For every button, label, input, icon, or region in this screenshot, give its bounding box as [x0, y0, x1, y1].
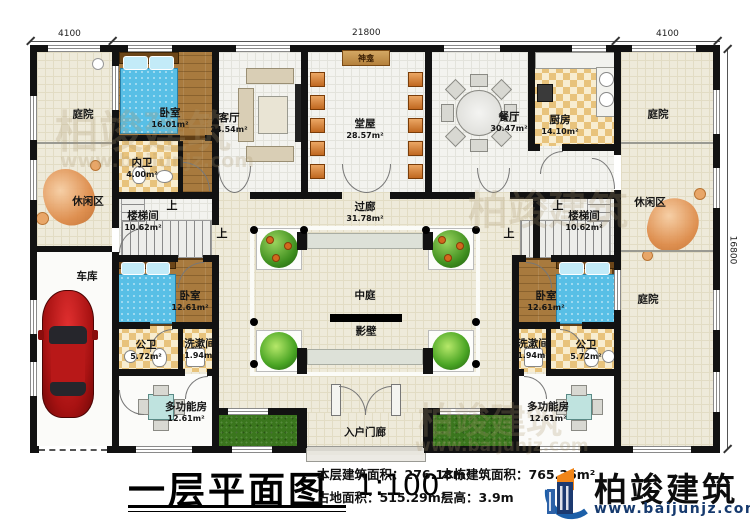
window — [128, 45, 172, 52]
wall — [308, 192, 342, 199]
window — [713, 290, 720, 330]
wall — [203, 255, 219, 262]
wall — [551, 255, 621, 262]
wall — [112, 322, 150, 329]
room-label-courtyard-bottom-right: 庭院 — [638, 294, 659, 307]
room-label-kitchen: 厨房14.10m² — [541, 114, 578, 136]
stair-up-label: 上 — [553, 197, 564, 213]
room-label-multi-room-right: 多功能房12.61m² — [527, 401, 569, 423]
stair-up-label: 上 — [217, 225, 228, 241]
room-label-leisure-right: 休闲区 — [634, 197, 666, 210]
column-dot — [472, 226, 480, 234]
room-label-atrium: 中庭 — [355, 290, 376, 303]
shrine-label: 神龛 — [358, 53, 374, 64]
fruit-tree-icon — [432, 230, 470, 268]
column-dot — [250, 318, 258, 326]
room-label-stairwell-right: 楼梯间10.62m² — [565, 210, 602, 232]
stair-up-label: 上 — [504, 225, 515, 241]
wall — [205, 135, 219, 141]
wall — [212, 195, 219, 225]
floor-plan-canvas: 神龛 柏竣建筑 www.baijunjz.com 柏竣建筑 柏竣建筑 www.b… — [0, 0, 750, 531]
stove-icon — [537, 84, 553, 102]
stair-up-label: 上 — [167, 197, 178, 213]
stone-dot — [694, 188, 706, 200]
column-dot — [300, 226, 308, 234]
table-icon — [566, 394, 592, 420]
wall — [562, 144, 621, 151]
lamp-icon — [92, 58, 104, 70]
wall — [112, 252, 119, 453]
wall — [432, 192, 475, 199]
wall — [546, 369, 621, 376]
window — [540, 446, 580, 453]
room-label-stairwell-left: 楼梯间10.62m² — [124, 210, 161, 232]
pier — [423, 348, 433, 374]
window — [713, 90, 720, 134]
divider-line — [621, 250, 713, 252]
room-label-main-hall: 堂屋28.57m² — [346, 118, 383, 140]
brand-website: www.baijunjz.com — [594, 501, 750, 517]
wall — [172, 322, 219, 329]
title-underline — [128, 505, 346, 508]
sink-icon — [599, 72, 614, 87]
wall — [112, 135, 180, 141]
room-label-entry-porch: 入户门廊 — [344, 427, 386, 440]
window — [228, 408, 268, 415]
room-label-screen-wall: 影壁 — [356, 326, 377, 339]
window — [713, 168, 720, 208]
basin-icon — [156, 170, 173, 183]
window — [444, 45, 500, 52]
column-dot — [250, 360, 258, 368]
column-dot — [422, 226, 430, 234]
stat-site-area: 占地面积：515.29m² — [317, 487, 446, 506]
stone-dot — [36, 212, 49, 225]
wall — [528, 45, 535, 151]
sink-icon — [599, 92, 614, 107]
wall — [390, 192, 425, 199]
room-label-garage: 车库 — [77, 271, 98, 284]
pier — [297, 408, 307, 448]
dimension-line-top — [30, 41, 720, 42]
wall — [301, 45, 308, 199]
room-label-wash-room-right: 洗漱间1.94m² — [517, 338, 549, 360]
grass-left — [219, 415, 298, 446]
shrine-cabinet: 神龛 — [342, 50, 390, 66]
dimension-top-left: 4100 — [58, 29, 81, 39]
bed-icon — [118, 274, 176, 324]
column-dot — [472, 318, 480, 326]
wall — [112, 255, 178, 262]
wall — [512, 255, 526, 262]
window — [572, 45, 606, 52]
window — [136, 446, 192, 453]
room-label-public-bath-left: 公卫5.72m² — [130, 339, 162, 361]
pier — [297, 232, 307, 250]
window — [232, 446, 272, 453]
room-label-courtyard-top-left: 庭院 — [73, 109, 94, 122]
palm-tree-icon — [260, 332, 298, 370]
sofa-icon — [246, 68, 294, 84]
dimension-top-right: 4100 — [656, 29, 679, 39]
wall — [614, 45, 621, 155]
window — [112, 66, 119, 110]
bed-icon — [556, 274, 616, 324]
pier — [423, 408, 433, 448]
room-label-bedroom-bottom-left: 卧室12.61m² — [171, 290, 208, 312]
room-label-dining-room: 餐厅30.47m² — [490, 111, 527, 133]
window — [236, 45, 290, 52]
room-label-multi-room-left: 多功能房12.61m² — [165, 401, 207, 423]
wall-garage-top — [30, 246, 112, 252]
wall — [512, 322, 560, 329]
wall — [425, 45, 432, 199]
wall — [512, 369, 524, 376]
stat-floor-height: 层高：3.9m — [441, 487, 514, 506]
room-label-wash-room-left: 洗漱间1.94m² — [184, 338, 216, 360]
wall — [178, 329, 183, 369]
wall — [207, 369, 219, 376]
window — [632, 45, 696, 52]
coffee-table-icon — [258, 96, 288, 134]
stone-dot — [90, 160, 101, 171]
wall — [582, 322, 621, 329]
walkway-bottom — [307, 349, 423, 365]
column-dot — [472, 360, 480, 368]
pier — [297, 348, 307, 374]
fruit-tree-icon — [260, 230, 298, 268]
wall — [112, 369, 185, 376]
wall — [528, 144, 540, 151]
grass-right — [432, 415, 512, 446]
room-label-corridor: 过廊31.78m² — [346, 201, 383, 223]
room-label-public-bath-right: 公卫5.72m² — [570, 339, 602, 361]
window — [30, 96, 37, 140]
pier — [423, 232, 433, 250]
divider-line — [621, 142, 713, 144]
walkway-top — [307, 233, 423, 249]
room-label-bedroom-bottom-right: 卧室12.61m² — [527, 290, 564, 312]
room-label-bedroom-top-left: 卧室16.01m² — [151, 107, 188, 129]
window — [713, 372, 720, 412]
wall — [250, 192, 301, 199]
car-icon — [42, 290, 94, 418]
dimension-top-center: 21800 — [352, 28, 381, 38]
room-label-living-room: 客厅24.54m² — [210, 112, 247, 134]
divider-line — [37, 142, 112, 144]
column-dot — [250, 226, 258, 234]
window — [48, 45, 100, 52]
sofa-icon — [246, 146, 294, 162]
title-underline-thin — [128, 511, 346, 512]
screen-wall-bar — [330, 314, 402, 322]
dimension-right-side: 16800 — [727, 236, 737, 265]
garage-door — [39, 446, 107, 453]
window — [614, 270, 621, 310]
window — [633, 446, 691, 453]
room-label-courtyard-top-right: 庭院 — [648, 109, 669, 122]
entry-door-leaf — [391, 384, 401, 416]
window — [30, 160, 37, 200]
room-label-leisure-left: 休闲区 — [72, 196, 104, 209]
wall — [533, 195, 540, 258]
window — [440, 408, 480, 415]
palm-tree-icon — [432, 332, 470, 370]
window — [30, 300, 37, 334]
window — [30, 362, 37, 396]
brand-logo-icon — [540, 461, 590, 523]
room-label-inner-bath: 内卫4.00m² — [126, 157, 158, 179]
